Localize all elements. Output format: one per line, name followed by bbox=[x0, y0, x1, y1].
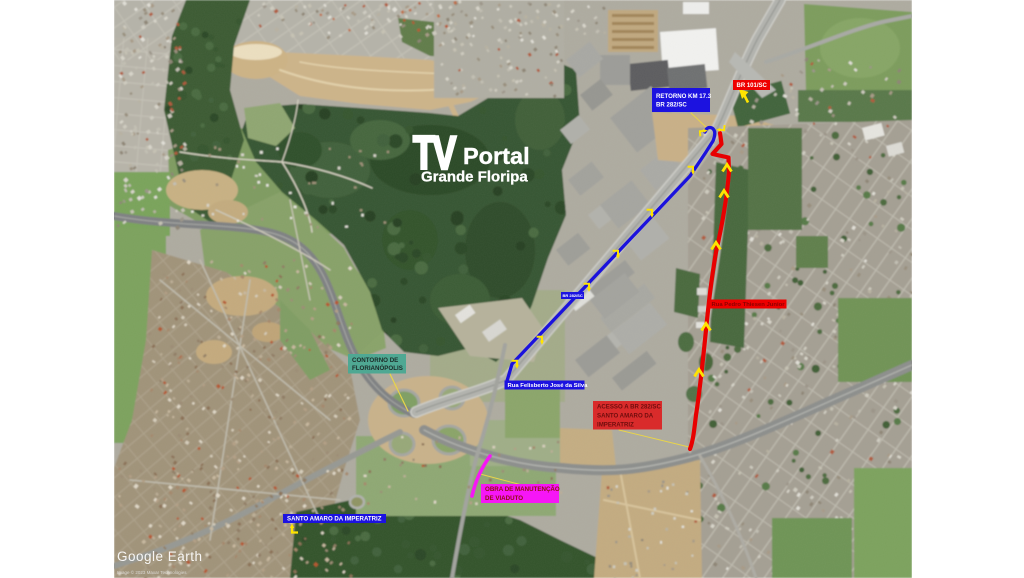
svg-text:BR 282/SC: BR 282/SC bbox=[656, 101, 687, 108]
svg-text:Rua Pedro Thiesen Junior: Rua Pedro Thiesen Junior bbox=[712, 302, 786, 308]
svg-text:Rua Felisberto José da Silva: Rua Felisberto José da Silva bbox=[508, 383, 589, 389]
svg-text:Image © 2023 Maxar Technologie: Image © 2023 Maxar Technologies bbox=[117, 569, 187, 575]
svg-text:Portal: Portal bbox=[463, 143, 530, 169]
svg-text:Google Earth: Google Earth bbox=[117, 549, 203, 564]
svg-text:SANTO AMARO DA IMPERATRIZ: SANTO AMARO DA IMPERATRIZ bbox=[287, 516, 382, 523]
svg-text:CONTORNO DE: CONTORNO DE bbox=[352, 357, 398, 364]
svg-text:IMPERATRIZ: IMPERATRIZ bbox=[597, 421, 634, 428]
svg-text:SANTO AMARO DA: SANTO AMARO DA bbox=[597, 412, 654, 419]
svg-text:BR 282/SC: BR 282/SC bbox=[563, 293, 583, 298]
svg-text:ACESSO A BR 282/SC: ACESSO A BR 282/SC bbox=[597, 403, 661, 410]
svg-text:RETORNO KM 17.3: RETORNO KM 17.3 bbox=[656, 93, 712, 100]
svg-text:FLORIANÓPOLIS: FLORIANÓPOLIS bbox=[352, 364, 403, 372]
svg-text:OBRA DE MANUTENÇÃO: OBRA DE MANUTENÇÃO bbox=[485, 486, 560, 493]
svg-text:DE VIADUTO: DE VIADUTO bbox=[485, 495, 523, 502]
svg-text:Grande Floripa: Grande Floripa bbox=[421, 169, 528, 186]
svg-text:BR 101/SC: BR 101/SC bbox=[737, 83, 768, 89]
